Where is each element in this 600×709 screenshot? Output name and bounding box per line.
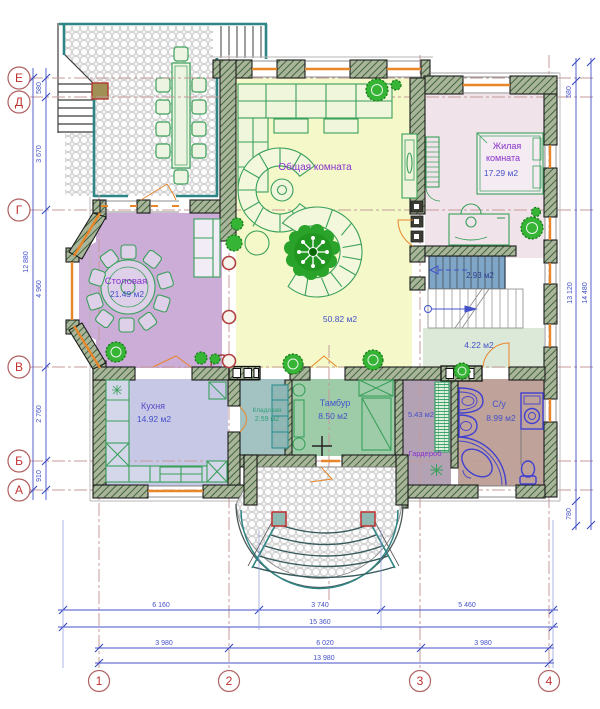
- svg-text:2: 2: [226, 674, 233, 688]
- svg-text:Г: Г: [16, 203, 23, 217]
- svg-text:6 020: 6 020: [316, 640, 334, 647]
- svg-text:3 980: 3 980: [474, 640, 492, 647]
- svg-text:580: 580: [36, 82, 43, 94]
- svg-text:4 960: 4 960: [36, 280, 43, 298]
- svg-text:Гардероб: Гардероб: [409, 449, 442, 458]
- svg-text:14 480: 14 480: [582, 282, 589, 304]
- svg-text:3 980: 3 980: [155, 640, 173, 647]
- svg-text:Кладовая: Кладовая: [252, 407, 282, 414]
- svg-text:2.93 м2: 2.93 м2: [466, 271, 494, 280]
- svg-text:12 880: 12 880: [23, 251, 30, 273]
- svg-text:2 760: 2 760: [36, 405, 43, 423]
- svg-text:5.43 м2: 5.43 м2: [408, 410, 434, 419]
- svg-text:21.49 м2: 21.49 м2: [110, 289, 144, 299]
- svg-text:17.29 м2: 17.29 м2: [484, 168, 518, 178]
- svg-text:Тамбур: Тамбур: [320, 398, 351, 408]
- svg-text:С/у: С/у: [492, 399, 506, 409]
- svg-text:Д: Д: [15, 95, 23, 109]
- svg-text:8.50 м2: 8.50 м2: [318, 411, 348, 421]
- svg-text:2.59 м2: 2.59 м2: [255, 416, 279, 423]
- svg-text:Кухня: Кухня: [141, 401, 165, 411]
- svg-text:А: А: [15, 483, 23, 497]
- svg-text:Е: Е: [15, 71, 23, 85]
- svg-text:8.99 м2: 8.99 м2: [486, 413, 516, 423]
- svg-text:14.92 м2: 14.92 м2: [137, 414, 171, 424]
- svg-text:Столовая: Столовая: [105, 276, 147, 287]
- svg-text:5 460: 5 460: [458, 602, 476, 609]
- svg-text:комната: комната: [486, 153, 520, 163]
- svg-text:50.82 м2: 50.82 м2: [323, 314, 357, 324]
- svg-text:3 740: 3 740: [311, 602, 329, 609]
- svg-text:6 160: 6 160: [152, 602, 170, 609]
- svg-text:580: 580: [566, 86, 573, 98]
- svg-text:910: 910: [36, 470, 43, 482]
- svg-text:Общая комната: Общая комната: [278, 161, 352, 173]
- svg-text:4: 4: [546, 674, 553, 688]
- svg-text:13 120: 13 120: [567, 282, 574, 304]
- svg-text:13 980: 13 980: [313, 655, 335, 662]
- svg-text:1: 1: [96, 674, 103, 688]
- svg-text:4.22 м2: 4.22 м2: [464, 340, 494, 350]
- svg-text:15 360: 15 360: [309, 619, 331, 626]
- svg-text:В: В: [15, 360, 23, 374]
- svg-text:3 670: 3 670: [36, 145, 43, 163]
- svg-text:3: 3: [417, 674, 424, 688]
- svg-text:780: 780: [566, 508, 573, 520]
- svg-text:Б: Б: [15, 454, 23, 468]
- svg-text:Жилая: Жилая: [493, 141, 522, 151]
